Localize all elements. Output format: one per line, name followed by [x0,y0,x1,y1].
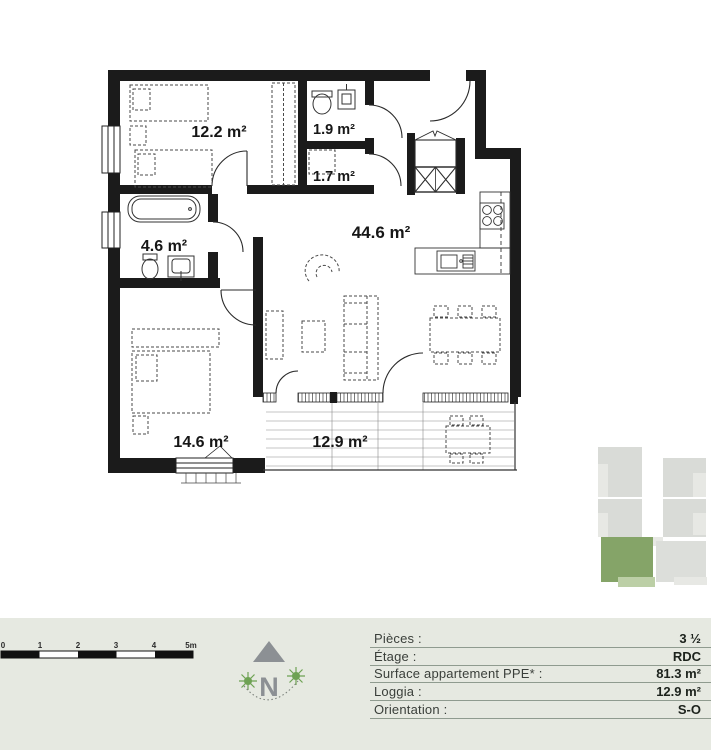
window-bathroom [102,212,120,248]
legend-value: 81.3 m² [656,666,701,681]
wc-toilet-icon [338,84,355,109]
site-highlight-unit [601,537,653,582]
nightstand-icon [130,126,146,145]
legend-label: Étage : [374,649,417,664]
legend-label: Surface appartement PPE* : [374,666,543,681]
armchair-sketch [305,255,339,281]
nightstand-icon [133,416,148,434]
wc-door-arc [369,105,402,138]
room-label-loggia: 12.9 m² [312,434,367,451]
loggia-door-small-arc [276,371,298,393]
loggia-floor-hatch [266,403,514,470]
legend-value: RDC [673,649,701,664]
legend-label: Orientation : [374,702,447,717]
entry-closet [415,131,456,192]
tv-stand-icon [266,311,283,359]
wardrobe-icon [132,329,219,347]
floor-plan: 12.2 m² 1.9 m² 1.7 m² 4.6 m² 44.6 m² 14.… [0,0,711,618]
wc-fixtures [312,84,355,114]
wc-sink-icon [312,91,332,114]
window-bedroom2 [176,446,241,483]
kitchen-counter-side [480,192,510,248]
wardrobe-icon [272,83,295,185]
svg-text:5m: 5m [185,641,197,650]
legend-label: Pièces : [374,631,422,646]
legend-row-orientation: Orientation : S-O [370,701,711,719]
bed-icon [130,85,208,121]
loggia-table-set-icon [446,416,490,463]
entry-door-arc [430,81,470,121]
sun-icon [239,672,257,690]
svg-text:0: 0 [1,641,6,650]
loggia [263,392,517,470]
kitchen [415,192,510,274]
bedroom2-furniture [132,329,219,434]
site-highlight-loggia [618,577,655,587]
toilet-icon [142,254,158,279]
page: 12.2 m² 1.9 m² 1.7 m² 4.6 m² 44.6 m² 14.… [0,0,711,750]
room-label-wc: 1.9 m² [313,122,355,138]
windows [102,126,241,483]
site-plan [598,447,707,587]
legend-value: 12.9 m² [656,684,701,699]
dining-set-icon [430,306,500,364]
legend-value: S-O [678,702,701,717]
legend-value: 3 ½ [679,631,701,646]
technical-shaft [415,167,456,192]
loggia-window-band [263,392,508,403]
legend-row-loggia: Loggia : 12.9 m² [370,683,711,701]
legend-row-surface: Surface appartement PPE* : 81.3 m² [370,666,711,684]
legend-row-pieces: Pièces : 3 ½ [370,630,711,648]
interior-walls [108,70,465,397]
legend-label: Loggia : [374,684,422,699]
room-label-bathroom: 4.6 m² [141,238,187,255]
basin-icon [168,256,194,281]
storage-door-arc [369,154,401,186]
compass: N [226,634,316,724]
bathroom-door-arc [213,222,243,252]
svg-text:2: 2 [76,641,81,650]
svg-text:4: 4 [152,641,157,650]
room-label-living: 44.6 m² [352,223,411,242]
sofa-icon [344,296,378,380]
footer: 0 1 2 3 4 5m N [0,618,711,750]
legend-row-etage: Étage : RDC [370,648,711,666]
scale-bar-ticks: 0 1 2 3 4 5m [1,641,197,650]
loggia-door-large-arc [383,353,423,393]
scale-bar-segments [1,651,193,658]
room-label-storage: 1.7 m² [313,169,355,185]
stove-icon [480,203,504,229]
sink-icon [437,251,475,271]
bed-icon [135,150,212,187]
compass-letter: N [259,672,279,702]
window-bedroom1 [102,126,120,173]
coffee-table-icon [302,321,325,352]
bedroom2-door-arc [221,290,256,325]
bedroom1-door-arc [212,151,247,186]
room-label-bedroom-2: 14.6 m² [173,434,228,451]
room-label-bedroom-1: 12.2 m² [191,124,246,141]
north-arrow-icon [253,641,285,662]
bed-icon [132,351,210,413]
sun-icon [287,667,305,685]
scale-bar: 0 1 2 3 4 5m [0,618,220,678]
svg-text:3: 3 [114,641,119,650]
svg-text:1: 1 [38,641,43,650]
legend-table: Pièces : 3 ½ Étage : RDC Surface apparte… [370,630,711,719]
bathtub-icon [128,196,200,222]
